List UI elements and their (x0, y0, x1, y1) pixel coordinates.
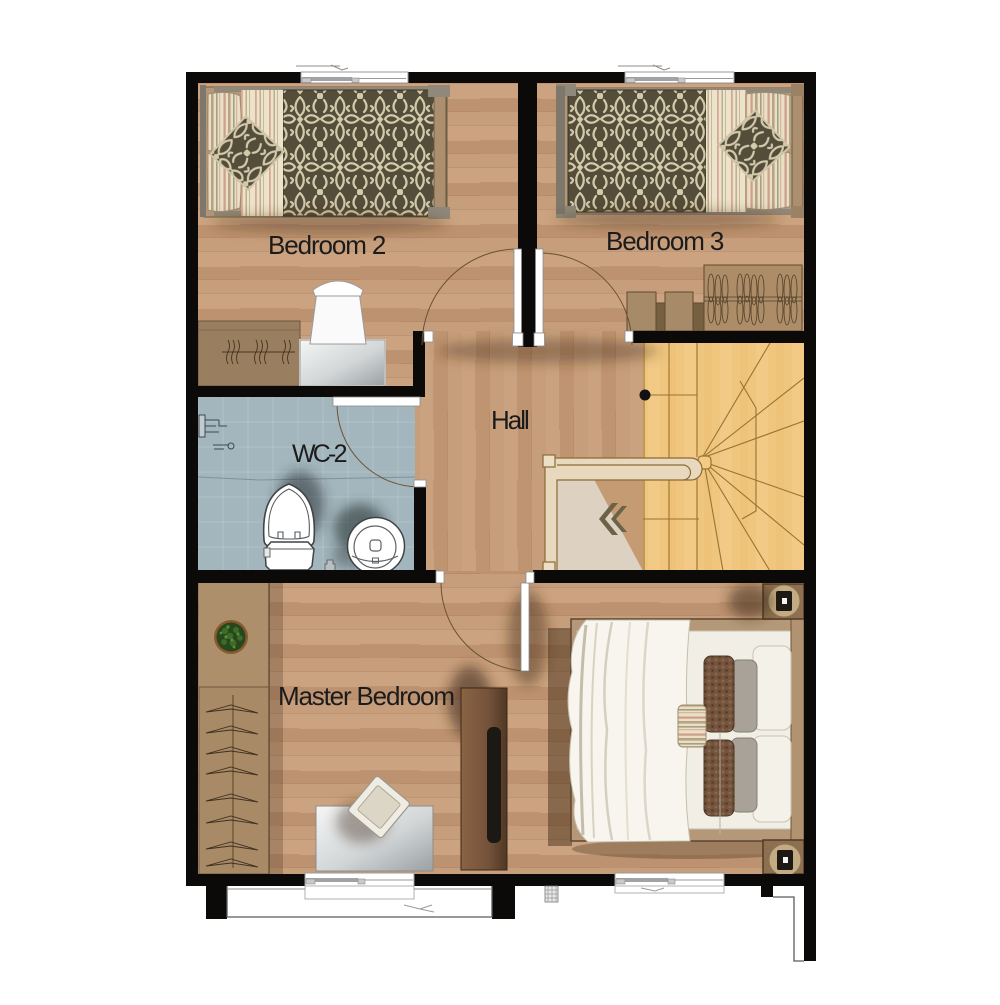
svg-text:WC-2: WC-2 (292, 440, 347, 468)
svg-text:Bedroom 3: Bedroom 3 (606, 226, 724, 256)
svg-text:Master Bedroom: Master Bedroom (278, 681, 454, 711)
svg-text:Hall: Hall (491, 405, 529, 435)
svg-text:Bedroom 2: Bedroom 2 (268, 230, 386, 260)
